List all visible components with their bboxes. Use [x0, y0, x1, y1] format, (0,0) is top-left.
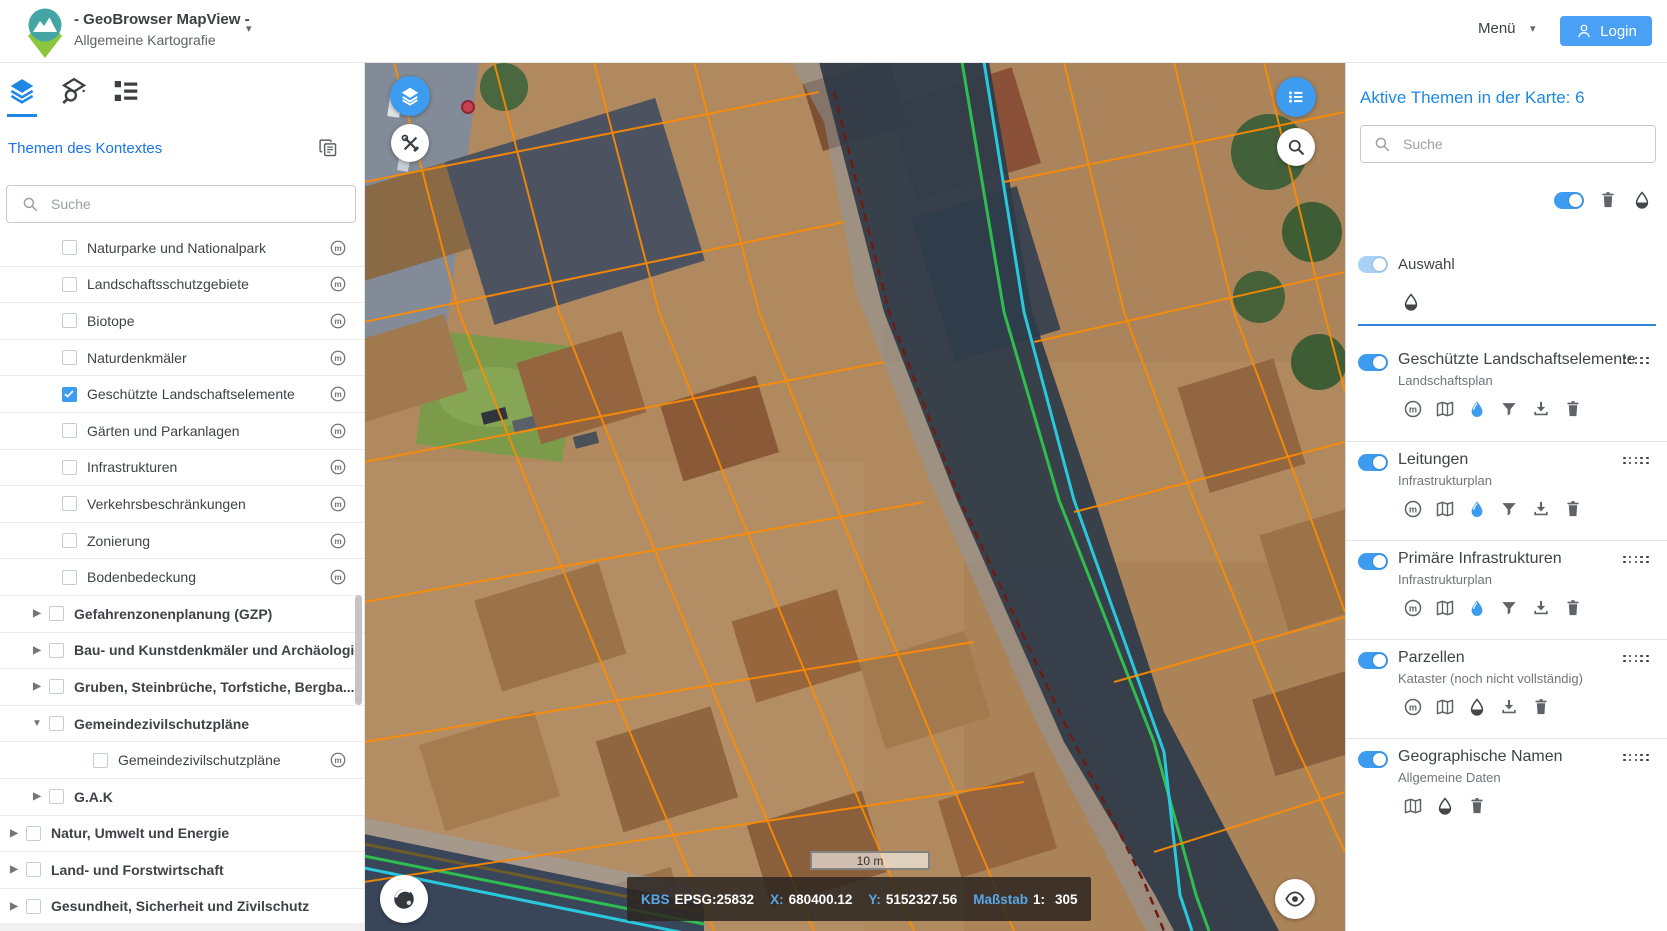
- theme-group-label: Bau- und Kunstdenkmäler und Archäologie: [74, 642, 362, 658]
- drag-handle[interactable]: [1622, 456, 1650, 465]
- checkbox[interactable]: [62, 350, 77, 365]
- context-search-box: [6, 185, 356, 223]
- svg-text:m: m: [334, 463, 341, 472]
- theme-list-icon: [1285, 86, 1307, 108]
- metadata-icon[interactable]: m: [1403, 598, 1423, 618]
- opacity-icon-active[interactable]: [1467, 598, 1487, 618]
- active-themes-title: Aktive Themen in der Karte: 6: [1360, 88, 1585, 108]
- metadata-icon[interactable]: m: [329, 532, 347, 550]
- context-themes-sidebar: Themen des Kontextes Naturparke und Nati…: [0, 62, 365, 931]
- map-icon[interactable]: [1435, 399, 1455, 419]
- geobrowser-app: - GeoBrowser MapView - Allgemeine Kartog…: [0, 0, 1667, 931]
- map-icon[interactable]: [1403, 796, 1423, 816]
- checkbox-checked[interactable]: [62, 387, 77, 402]
- auswahl-label: Auswahl: [1398, 256, 1455, 273]
- expand-caret-icon[interactable]: ▶: [8, 828, 20, 839]
- active-tab-underline: [7, 114, 37, 117]
- app-title: - GeoBrowser MapView -: [74, 10, 250, 30]
- theme-group-label: Natur, Umwelt und Energie: [51, 825, 229, 841]
- sidebar-tabs: [0, 62, 364, 118]
- drag-handle[interactable]: [1622, 356, 1650, 365]
- layers-icon: [399, 85, 421, 107]
- map-viewport[interactable]: 10 m KBS EPSG:25832 X: 680400.12 Y: 5152…: [364, 62, 1345, 931]
- theme-group-label: Land- und Forstwirtschaft: [51, 862, 224, 878]
- scalebar-label: 10 m: [857, 854, 884, 868]
- active-layer-entry: Primäre Infrastrukturen Infrastrukturpla…: [1346, 540, 1667, 640]
- download-icon[interactable]: [1531, 499, 1551, 519]
- active-themes-panel-button[interactable]: [1276, 77, 1316, 117]
- eye-icon: [1284, 888, 1306, 910]
- collapse-caret-icon[interactable]: ▼: [31, 718, 43, 729]
- tab-layers[interactable]: [7, 76, 37, 106]
- theme-group-label: G.A.K: [74, 789, 113, 805]
- x-label: X:: [770, 892, 784, 907]
- scale-value[interactable]: 305: [1055, 892, 1078, 907]
- delete-icon[interactable]: [1467, 796, 1487, 816]
- metadata-icon[interactable]: m: [329, 751, 347, 769]
- download-icon[interactable]: [1499, 697, 1519, 717]
- metadata-icon[interactable]: m: [329, 239, 347, 257]
- opacity-icon[interactable]: [1401, 292, 1421, 312]
- theme-row[interactable]: Geschützte Landschaftselemente m: [0, 376, 364, 413]
- delete-icon[interactable]: [1563, 598, 1583, 618]
- app-header: - GeoBrowser MapView - Allgemeine Kartog…: [0, 0, 1667, 63]
- svg-text:m: m: [1409, 603, 1417, 613]
- checkbox[interactable]: [26, 862, 41, 877]
- scale-label: Maßstab: [973, 892, 1028, 907]
- map-aerial-imagery[interactable]: [364, 62, 1345, 931]
- layer-title: Leitungen: [1398, 451, 1468, 469]
- active-themes-sidebar: Aktive Themen in der Karte: 6 Auswahl: [1345, 62, 1667, 931]
- filter-icon[interactable]: [1499, 598, 1519, 618]
- metadata-icon[interactable]: m: [329, 349, 347, 367]
- basemap-layers-button[interactable]: [390, 76, 430, 116]
- metadata-icon[interactable]: m: [329, 495, 347, 513]
- checkbox[interactable]: [49, 716, 64, 731]
- kbs-value: EPSG:25832: [675, 892, 755, 907]
- svg-text:m: m: [334, 390, 341, 399]
- svg-text:m: m: [334, 756, 341, 765]
- metadata-icon[interactable]: m: [329, 385, 347, 403]
- metadata-icon[interactable]: m: [329, 568, 347, 586]
- menu-chevron-down-icon[interactable]: ▾: [1530, 22, 1536, 35]
- theme-group-label: Gefahrenzonenplanung (GZP): [74, 606, 272, 622]
- search-icon: [1373, 135, 1391, 153]
- checkbox[interactable]: [26, 826, 41, 841]
- theme-label: Bodenbedeckung: [87, 569, 196, 585]
- theme-group-row[interactable]: ▶ Natur, Umwelt und Energie: [0, 816, 364, 853]
- theme-label: Landschaftsschutzgebiete: [87, 276, 249, 292]
- svg-text:m: m: [334, 280, 341, 289]
- svg-text:m: m: [1409, 404, 1417, 414]
- checkbox[interactable]: [49, 606, 64, 621]
- theme-label: Geschützte Landschaftselemente: [87, 386, 295, 402]
- opacity-icon-active[interactable]: [1467, 399, 1487, 419]
- checkbox[interactable]: [49, 643, 64, 658]
- layer-toggle[interactable]: [1358, 751, 1388, 768]
- theme-row[interactable]: Naturdenkmäler m: [0, 340, 364, 377]
- layer-subtitle: Allgemeine Daten: [1398, 770, 1501, 785]
- expand-caret-icon[interactable]: ▶: [31, 791, 43, 802]
- scale-prefix: 1:: [1033, 892, 1045, 907]
- context-theme-list: Naturparke und Nationalpark m Landschaft…: [0, 237, 364, 923]
- app-title-block[interactable]: - GeoBrowser MapView - Allgemeine Kartog…: [74, 10, 250, 50]
- theme-group-row[interactable]: ▶ Bau- und Kunstdenkmäler und Archäologi…: [0, 633, 364, 670]
- svg-text:m: m: [1409, 504, 1417, 514]
- layer-title: Primäre Infrastrukturen: [1398, 550, 1562, 568]
- theme-group-label: Gemeindezivilschutzpläne: [74, 716, 249, 732]
- y-coordinate: 5152327.56: [886, 892, 957, 907]
- opacity-icon[interactable]: [1467, 697, 1487, 717]
- map-tools-button[interactable]: [391, 124, 429, 162]
- layer-toggle[interactable]: [1358, 354, 1388, 371]
- app-logo-icon: [22, 5, 68, 59]
- active-themes-search-box: [1360, 125, 1656, 163]
- map-scalebar: 10 m: [810, 851, 930, 870]
- theme-row[interactable]: Verkehrsbeschränkungen m: [0, 486, 364, 523]
- checkbox[interactable]: [62, 460, 77, 475]
- map-statusbar: KBS EPSG:25832 X: 680400.12 Y: 5152327.5…: [627, 877, 1091, 921]
- section-divider: [1358, 324, 1656, 326]
- auswahl-toggle[interactable]: [1358, 256, 1388, 273]
- globe-button[interactable]: [380, 875, 428, 923]
- sidebar-scrollbar-thumb[interactable]: [355, 595, 362, 705]
- theme-label: Verkehrsbeschränkungen: [87, 496, 246, 512]
- checkbox[interactable]: [49, 789, 64, 804]
- y-label: Y:: [868, 892, 881, 907]
- theme-label: Gemeindezivilschutzpläne: [118, 752, 281, 768]
- menu-button[interactable]: Menü: [1478, 20, 1516, 37]
- theme-row[interactable]: Naturparke und Nationalpark m: [0, 237, 364, 267]
- duplicate-context-icon[interactable]: [318, 138, 338, 158]
- layer-title: Geographische Namen: [1398, 748, 1563, 766]
- theme-group-label: Gruben, Steinbrüche, Torfstiche, Bergba.…: [74, 679, 355, 695]
- opacity-icon[interactable]: [1435, 796, 1455, 816]
- opacity-icon[interactable]: [1632, 190, 1652, 210]
- map-icon[interactable]: [1435, 598, 1455, 618]
- tab-legend-list[interactable]: [111, 76, 141, 106]
- map-icon[interactable]: [1435, 499, 1455, 519]
- layer-toggle[interactable]: [1358, 553, 1388, 570]
- map-point-marker[interactable]: [461, 100, 475, 114]
- theme-row[interactable]: Bodenbedeckung m: [0, 559, 364, 596]
- theme-group-label: Gesundheit, Sicherheit und Zivilschutz: [51, 898, 309, 914]
- metadata-icon[interactable]: m: [329, 422, 347, 440]
- svg-text:m: m: [334, 244, 341, 253]
- layer-subtitle: Kataster (noch nicht vollständig): [1398, 671, 1583, 686]
- metadata-icon[interactable]: m: [329, 458, 347, 476]
- checkbox[interactable]: [62, 277, 77, 292]
- active-layer-entry: Geographische Namen Allgemeine Daten: [1346, 738, 1667, 838]
- context-search-input[interactable]: [49, 195, 355, 213]
- expand-caret-icon[interactable]: ▶: [31, 608, 43, 619]
- theme-group-row[interactable]: ▶ G.A.K: [0, 779, 364, 816]
- sidebar-hscrollbar[interactable]: [0, 923, 364, 931]
- theme-row[interactable]: Gärten und Parkanlagen m: [0, 413, 364, 450]
- checkbox[interactable]: [62, 570, 77, 585]
- layer-title: Geschützte Landschaftselemente: [1398, 351, 1635, 369]
- theme-row[interactable]: Zonierung m: [0, 523, 364, 560]
- checkbox[interactable]: [62, 533, 77, 548]
- tools-icon: [400, 133, 421, 154]
- themes-toolbar: [1554, 190, 1652, 210]
- search-icon: [21, 195, 39, 213]
- metadata-icon[interactable]: m: [1403, 697, 1423, 717]
- checkbox[interactable]: [62, 423, 77, 438]
- svg-text:m: m: [1409, 702, 1417, 712]
- x-coordinate: 680400.12: [789, 892, 853, 907]
- theme-row[interactable]: Infrastrukturen m: [0, 450, 364, 487]
- theme-row[interactable]: Biotope m: [0, 303, 364, 340]
- theme-group-row[interactable]: ▶ Land- und Forstwirtschaft: [0, 852, 364, 889]
- drag-handle[interactable]: [1622, 555, 1650, 564]
- svg-text:m: m: [334, 427, 341, 436]
- login-label: Login: [1600, 23, 1637, 40]
- theme-group-row[interactable]: ▼ Gemeindezivilschutzpläne: [0, 706, 364, 743]
- person-icon: [1575, 22, 1593, 40]
- theme-label: Infrastrukturen: [87, 459, 177, 475]
- tab-layers-search[interactable]: [59, 76, 89, 106]
- login-button[interactable]: Login: [1560, 16, 1652, 46]
- theme-label: Naturparke und Nationalpark: [87, 240, 266, 256]
- theme-group-row[interactable]: ▶ Gruben, Steinbrüche, Torfstiche, Bergb…: [0, 669, 364, 706]
- metadata-icon[interactable]: m: [329, 312, 347, 330]
- context-themes-heading: Themen des Kontextes: [8, 140, 162, 157]
- delete-all-icon[interactable]: [1598, 190, 1618, 210]
- metadata-icon[interactable]: m: [1403, 499, 1423, 519]
- delete-icon[interactable]: [1563, 399, 1583, 419]
- drag-handle[interactable]: [1622, 654, 1650, 663]
- layer-title: Parzellen: [1398, 649, 1465, 667]
- globe-icon: [391, 886, 417, 912]
- checkbox[interactable]: [62, 313, 77, 328]
- svg-text:m: m: [334, 354, 341, 363]
- metadata-icon[interactable]: m: [329, 275, 347, 293]
- active-layer-entry: Leitungen Infrastrukturplan m: [1346, 441, 1667, 541]
- svg-text:m: m: [334, 573, 341, 582]
- expand-caret-icon[interactable]: ▶: [31, 681, 43, 692]
- checkbox[interactable]: [93, 753, 108, 768]
- svg-text:m: m: [334, 500, 341, 509]
- map-icon[interactable]: [1435, 697, 1455, 717]
- checkbox[interactable]: [62, 240, 77, 255]
- theme-label: Biotope: [87, 313, 134, 329]
- layer-subtitle: Infrastrukturplan: [1398, 473, 1492, 488]
- active-layer-entry: Geschützte Landschaftselemente Landschaf…: [1346, 342, 1667, 441]
- download-icon[interactable]: [1531, 598, 1551, 618]
- svg-text:m: m: [334, 537, 341, 546]
- theme-group-row[interactable]: ▶ Gefahrenzonenplanung (GZP): [0, 596, 364, 633]
- active-themes-search-input[interactable]: [1401, 135, 1655, 153]
- expand-caret-icon[interactable]: ▶: [8, 864, 20, 875]
- checkbox[interactable]: [62, 496, 77, 511]
- metadata-icon[interactable]: m: [1403, 399, 1423, 419]
- filter-icon[interactable]: [1499, 399, 1519, 419]
- active-layer-entry: Parzellen Kataster (noch nicht vollständ…: [1346, 639, 1667, 739]
- layer-subtitle: Landschaftsplan: [1398, 373, 1493, 388]
- theme-group-row[interactable]: ▶ Gesundheit, Sicherheit und Zivilschutz: [0, 889, 364, 923]
- theme-label: Naturdenkmäler: [87, 350, 187, 366]
- checkbox[interactable]: [26, 899, 41, 914]
- filter-icon[interactable]: [1499, 499, 1519, 519]
- all-themes-toggle[interactable]: [1554, 192, 1584, 209]
- drag-handle[interactable]: [1622, 753, 1650, 762]
- checkbox[interactable]: [49, 679, 64, 694]
- theme-row[interactable]: Landschaftsschutzgebiete m: [0, 267, 364, 304]
- layer-subtitle: Infrastrukturplan: [1398, 572, 1492, 587]
- search-icon: [1286, 137, 1306, 157]
- title-chevron-down-icon[interactable]: ▾: [246, 22, 252, 35]
- theme-label: Zonierung: [87, 533, 150, 549]
- layer-toggle[interactable]: [1358, 454, 1388, 471]
- theme-row[interactable]: Gemeindezivilschutzpläne m: [0, 742, 364, 779]
- kbs-label: KBS: [641, 892, 670, 907]
- app-subtitle: Allgemeine Kartografie: [74, 30, 250, 50]
- layer-toggle[interactable]: [1358, 652, 1388, 669]
- download-icon[interactable]: [1531, 399, 1551, 419]
- map-search-button[interactable]: [1277, 128, 1315, 166]
- theme-label: Gärten und Parkanlagen: [87, 423, 240, 439]
- svg-text:m: m: [334, 317, 341, 326]
- delete-icon[interactable]: [1563, 499, 1583, 519]
- opacity-icon-active[interactable]: [1467, 499, 1487, 519]
- expand-caret-icon[interactable]: ▶: [31, 645, 43, 656]
- expand-caret-icon[interactable]: ▶: [8, 901, 20, 912]
- delete-icon[interactable]: [1531, 697, 1551, 717]
- visibility-button[interactable]: [1275, 879, 1315, 919]
